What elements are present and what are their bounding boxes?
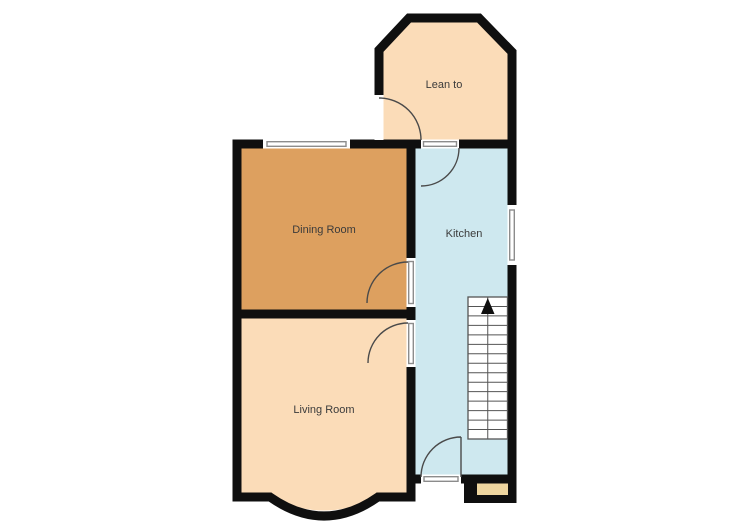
kitchen-top-threshold [424, 142, 457, 147]
label-kitchen: Kitchen [446, 228, 483, 240]
dining-door-threshold [409, 262, 414, 304]
kitchen-bottom-threshold [424, 477, 458, 482]
label-lean-to: Lean to [426, 79, 463, 91]
floor-plan-canvas: Lean to Dining Room Kitchen Living Room [0, 0, 750, 530]
living-door-threshold [409, 324, 414, 364]
label-dining-room: Dining Room [292, 224, 356, 236]
opening-lean-to-door [375, 95, 384, 140]
label-living-room: Living Room [293, 404, 354, 416]
floor-plan: Lean to Dining Room Kitchen Living Room [0, 0, 750, 530]
entry-step [477, 483, 508, 495]
kitchen-window-icon [510, 210, 515, 260]
dining-window-icon [267, 142, 346, 147]
staircase [468, 297, 508, 439]
